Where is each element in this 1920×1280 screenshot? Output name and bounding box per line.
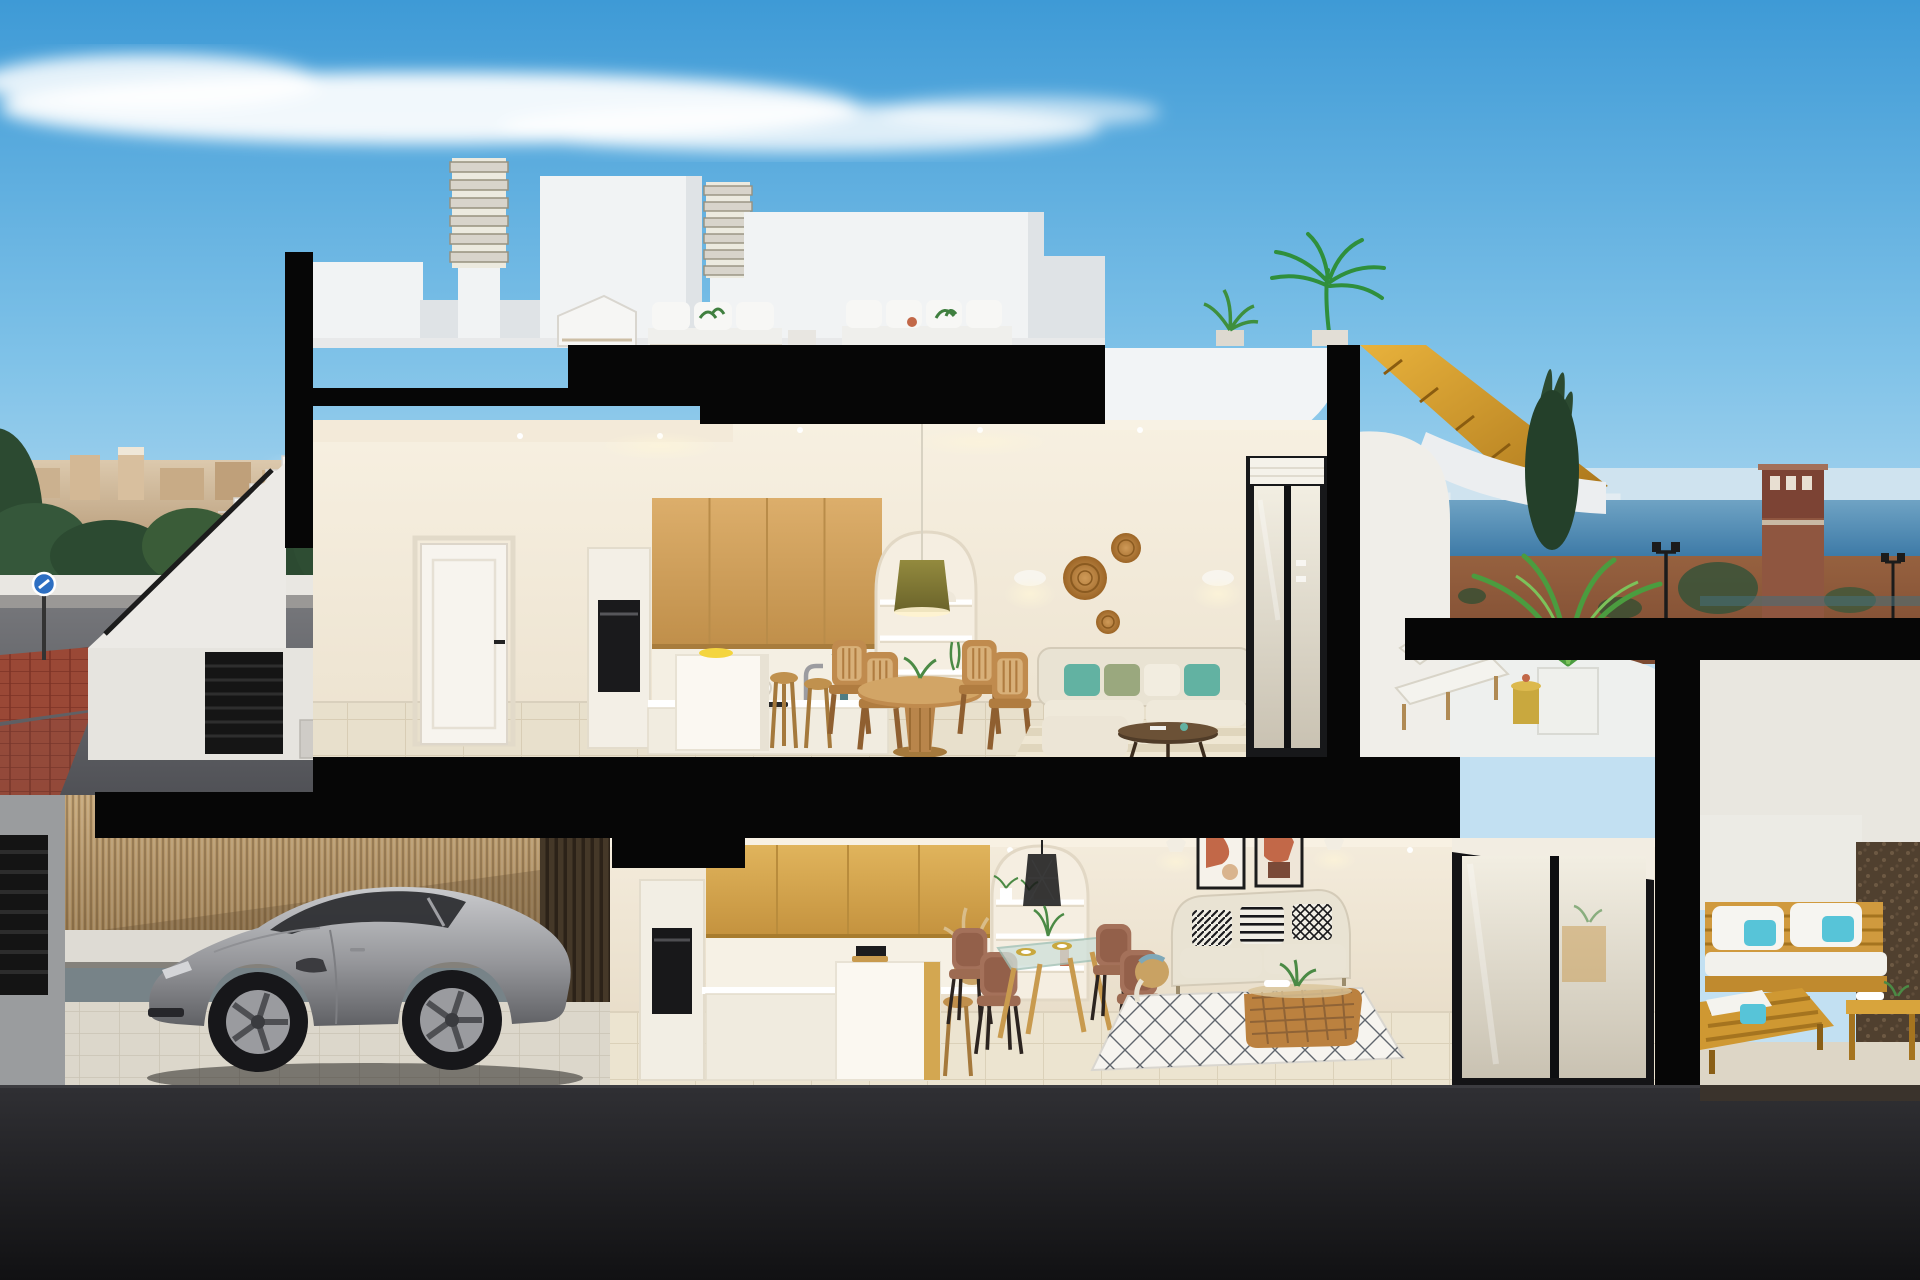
cut-wall-left	[285, 252, 313, 548]
car-side-vent	[296, 958, 327, 973]
turquoise-pillow-2	[1740, 1004, 1766, 1024]
car-front-wheel	[208, 972, 308, 1072]
render-viewport: Sectioned duplex house with black cut pl…	[0, 0, 1920, 1280]
turquoise-pillow	[1744, 920, 1776, 946]
door-mullion	[1284, 486, 1291, 748]
roller-blind	[1250, 458, 1324, 484]
cross-section-render: Sectioned duplex house with black cut pl…	[0, 0, 1920, 1280]
car-splitter	[148, 1008, 184, 1017]
turquoise-pillow	[1822, 916, 1854, 942]
lower-floor: Lower apartment: kitchen, dining corner,…	[610, 824, 1655, 1090]
table-tray-2	[1856, 992, 1884, 1000]
car-rear-wheel	[402, 970, 502, 1070]
lower-sliding-door: Black-framed sliding glass door reflecti…	[1452, 838, 1654, 1088]
upper-sliding-door: Dark-framed sliding glass door with roll…	[1246, 456, 1327, 757]
cushion-bw-stripe	[1240, 906, 1284, 944]
upper-floor: Upper apartment: kitchen, dining area, l…	[313, 420, 1327, 772]
lower-sofa	[1172, 890, 1350, 994]
cut-bar-right	[1405, 618, 1920, 660]
planter-wall	[1700, 815, 1862, 910]
kitchen-island	[676, 648, 768, 750]
table-tray	[1264, 980, 1290, 987]
cut-column-upper-right	[1327, 345, 1360, 757]
wall-cabinets	[652, 498, 882, 649]
roof-side-table	[788, 330, 816, 346]
lemon-bowl	[699, 648, 733, 658]
roof-sofa	[648, 302, 782, 346]
roof-volume-right-side	[1028, 212, 1044, 346]
road: Dark asphalt road in the foreground	[0, 1085, 1920, 1280]
bar-stool	[770, 672, 798, 748]
wood-outdoor-sofa	[1705, 902, 1887, 992]
glass-balustrade	[1700, 596, 1920, 606]
cushion-cream	[1144, 664, 1180, 696]
roof-sofa-2	[842, 300, 1012, 346]
island-lower	[836, 956, 940, 1080]
terrace-back-walls	[1700, 660, 1920, 842]
car-door-handle	[350, 948, 365, 952]
cushion-teal	[1064, 664, 1100, 696]
curb-line	[0, 1085, 1920, 1088]
cushion-bw-diagonal	[1192, 910, 1232, 946]
cutting-board	[852, 956, 888, 962]
cut-column-lower-right	[1655, 660, 1700, 1085]
wall-cabinets-lower	[706, 845, 990, 938]
sofa-chaise	[1042, 716, 1128, 756]
cushion-bw-cross	[1292, 904, 1332, 940]
reflected-bench	[1562, 926, 1606, 982]
door-handle	[494, 640, 505, 644]
lower-kitchen: Lower kitchen with oak cabinets, black o…	[640, 845, 994, 1080]
palm-pot	[1538, 668, 1598, 734]
cypress-tree-body	[1525, 390, 1579, 550]
louvered-gate	[205, 652, 283, 754]
roof-parapet-right	[1044, 256, 1105, 346]
chimney-1	[450, 158, 508, 346]
base-cabinets-lower	[706, 994, 836, 1080]
sofa-seat	[1705, 952, 1887, 976]
upper-interior-door	[415, 538, 513, 744]
roof-volume-left	[313, 262, 423, 346]
lower-terrace: Covered terrace with acacia-wood sofa, t…	[1700, 660, 1920, 1090]
cushion-teal-2	[1184, 664, 1220, 696]
terrace-deck	[1700, 1042, 1920, 1090]
door-mullion-lower	[1550, 856, 1559, 1078]
gravel-edge	[1700, 1085, 1920, 1101]
cushion-sage	[1104, 664, 1140, 696]
